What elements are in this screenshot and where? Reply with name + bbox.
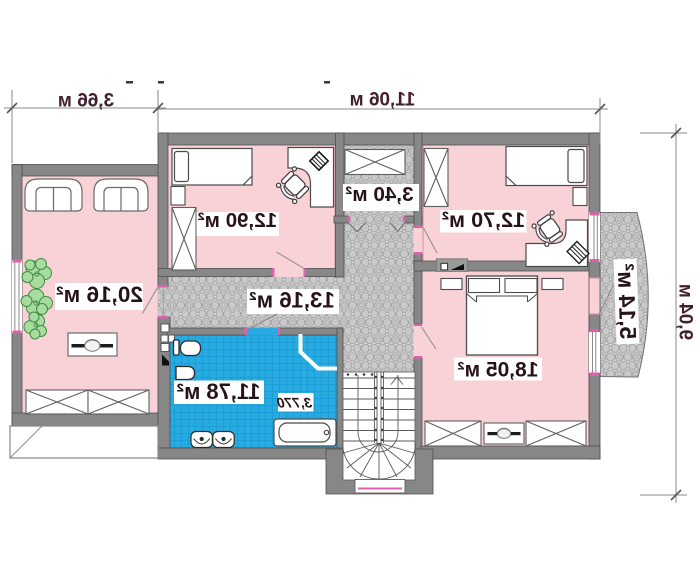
svg-text:18,05 м²: 18,05 м² [458, 359, 539, 382]
svg-text:3,40 м²: 3,40 м² [345, 183, 413, 206]
svg-text:5,14 м²: 5,14 м² [613, 263, 642, 340]
svg-text:3,66 м: 3,66 м [58, 90, 114, 111]
svg-text:12,90 м²: 12,90 м² [198, 209, 277, 232]
svg-text:13,16 м²: 13,16 м² [249, 288, 335, 313]
svg-text:11,06 м: 11,06 м [350, 89, 416, 110]
svg-text:11,78 м²: 11,78 м² [177, 379, 261, 404]
svg-text:9,04 м: 9,04 м [675, 284, 696, 340]
svg-text:20,16 м²: 20,16 м² [56, 282, 143, 307]
svg-text:3,770: 3,770 [275, 396, 314, 412]
svg-text:12,70 м²: 12,70 м² [442, 207, 525, 232]
